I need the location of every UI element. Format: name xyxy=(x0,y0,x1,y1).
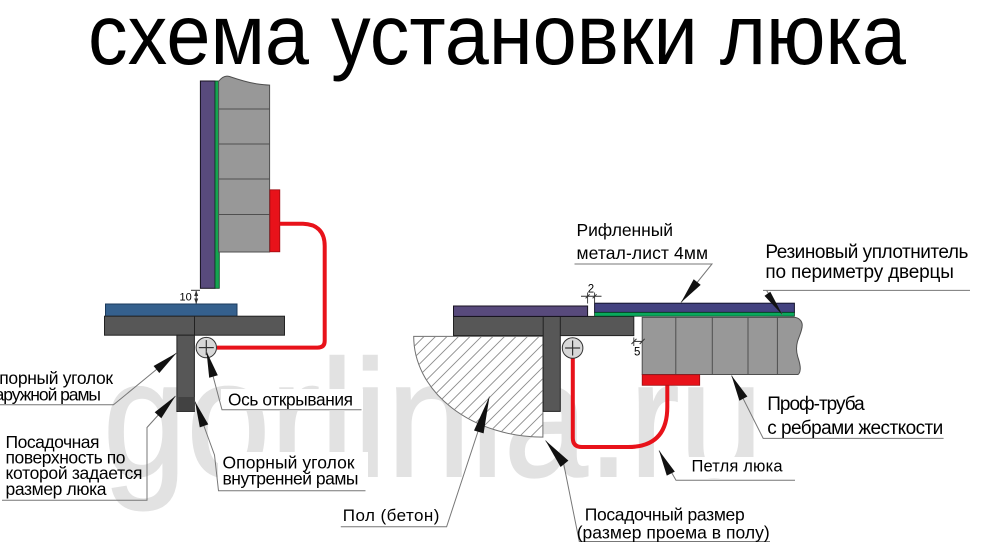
svg-text:схема установки люка: схема установки люка xyxy=(88,0,907,83)
svg-text:5: 5 xyxy=(634,346,640,358)
svg-text:Ось открывания: Ось открывания xyxy=(228,390,353,410)
svg-text:Рифленный: Рифленный xyxy=(577,220,674,240)
svg-text:внутренней рамы: внутренней рамы xyxy=(223,468,359,488)
svg-text:метал-лист 4мм: метал-лист 4мм xyxy=(577,243,709,263)
svg-text:наружной рамы: наружной рамы xyxy=(0,384,101,404)
svg-text:с ребрами жесткости: с ребрами жесткости xyxy=(767,418,943,439)
svg-text:Проф-труба: Проф-труба xyxy=(767,394,865,415)
svg-text:10: 10 xyxy=(180,292,192,304)
svg-text:размер люка: размер люка xyxy=(6,479,107,499)
svg-text:по периметру дверцы: по периметру дверцы xyxy=(765,262,954,283)
svg-text:Резиновый уплотнитель: Резиновый уплотнитель xyxy=(765,242,968,263)
svg-text:2: 2 xyxy=(588,283,594,295)
svg-text:Петля люка: Петля люка xyxy=(692,457,784,475)
svg-text:Пол (бетон): Пол (бетон) xyxy=(343,506,440,525)
svg-text:Посадочный размер: Посадочный размер xyxy=(585,504,745,524)
svg-text:(размер проема в полу): (размер проема в полу) xyxy=(577,523,770,543)
